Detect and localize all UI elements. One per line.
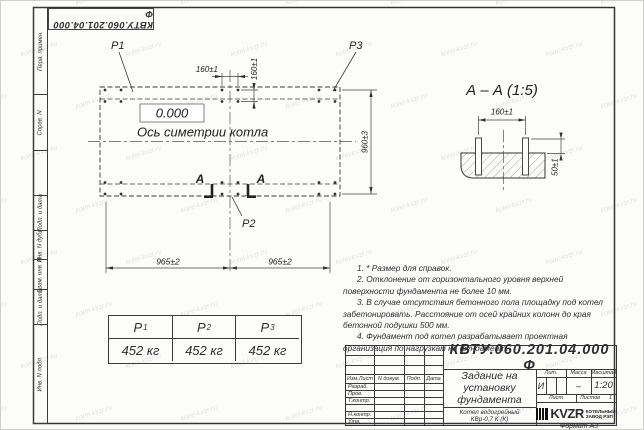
anchor-bolt-left xyxy=(476,138,482,175)
loads-value-p3: 452 кг xyxy=(236,339,299,361)
drawing-sheet: kotel-kvzr.rukotel-kvzr.rukotel-kvzr.ruk… xyxy=(0,0,644,430)
col-data: Дата xyxy=(424,374,443,383)
row-tkontr: Т.контр. xyxy=(346,397,374,404)
dim-span-lines xyxy=(106,202,330,273)
loads-value-p1: 452 кг xyxy=(109,339,173,361)
company-cell: KVZR КОТЕЛЬНЫЙ ЗАВОД РЭП xyxy=(536,402,616,425)
row-utv: Утв. xyxy=(346,418,374,425)
margin-label: Подп. и дата xyxy=(38,288,44,326)
dim-height: 960±3 xyxy=(361,130,370,153)
section-letter-left: А xyxy=(195,172,205,186)
anchor-bolt-right xyxy=(523,138,529,175)
margin-inv-dubl: Инв. N дубл. xyxy=(33,230,48,260)
dim-height-lines xyxy=(342,90,377,194)
scale-value: 1:20 xyxy=(591,377,616,394)
section-title: А – А (1:5) xyxy=(465,82,538,99)
margin-label: Подп. и дата xyxy=(38,194,44,232)
dim-bolt-y: 160±1 xyxy=(250,58,259,80)
load-point-p1: Р1 xyxy=(111,40,124,52)
dim-span-right: 965±2 xyxy=(268,257,292,267)
section-letter-right: А xyxy=(256,172,266,186)
margin-label: Справ. N xyxy=(38,110,44,135)
margin-sprav-n: Справ. N xyxy=(33,94,48,151)
top-doc-number: КВТУ.060.201.04.000 Ф xyxy=(49,8,153,30)
top-doc-number-box: КВТУ.060.201.04.000 Ф xyxy=(48,8,154,30)
mass-label: Масса xyxy=(566,369,591,377)
margin-inv-podl: Инв. N подл. xyxy=(33,324,48,424)
margin-empty xyxy=(33,150,48,196)
col-izm-list: Изм.Лист xyxy=(346,374,374,383)
elevation-value: 0.000 xyxy=(156,106,189,121)
sheet-label: Лист xyxy=(536,394,576,402)
scale-label: Масштаб xyxy=(591,369,616,377)
sheets-label: Листов xyxy=(580,395,600,401)
company-logo-icon xyxy=(536,408,548,420)
title-block: КВТУ.060.201.04.000 Ф Задание на установ… xyxy=(345,345,617,426)
lit-label: Лит. xyxy=(536,369,566,377)
margin-label: Инв. N подл. xyxy=(38,356,44,391)
dim-span-left: 965±2 xyxy=(156,257,180,267)
axis-label: Ось симетрии котла xyxy=(137,125,268,140)
section-dim-protrusion-lines xyxy=(531,139,565,154)
section-dim-protrusion: 50±1 xyxy=(551,158,560,176)
row-empty xyxy=(346,404,374,411)
lit-value: И xyxy=(536,377,546,394)
section-dim-spacing-lines xyxy=(479,116,526,135)
margin-podp-data-2: Подп. и дата xyxy=(33,289,48,325)
grid-line xyxy=(346,365,443,366)
load-point-p2: Р2 xyxy=(242,218,255,230)
row-razrab: Разраб. xyxy=(346,383,374,390)
load-point-p3: Р3 xyxy=(349,40,363,52)
loads-header-p3: Р3 xyxy=(236,316,299,339)
company-logo-text: KVZR xyxy=(550,406,583,421)
loads-header-p2: Р2 xyxy=(173,316,236,339)
margin-label: Взам. инв. N xyxy=(38,257,44,292)
row-prov: Пров. xyxy=(346,390,374,397)
doc-number: КВТУ.060.201.04.000 Ф xyxy=(443,346,616,369)
sheets-cell: Листов 1 xyxy=(576,394,616,402)
drawing-title: Задание на установку фундамента xyxy=(443,369,536,407)
anchor-bolt-dots xyxy=(104,89,337,196)
grid-line xyxy=(374,346,375,425)
section-dim-spacing: 160±1 xyxy=(491,108,513,117)
row-nkontr: Н.контр. xyxy=(346,411,374,418)
dim-bolt-x: 160±1 xyxy=(196,65,218,74)
grid-line xyxy=(546,377,547,394)
margin-label: Перв. примен. xyxy=(38,31,44,71)
margin-perv-primen: Перв. примен. xyxy=(33,7,48,95)
loads-header-p1: Р1 xyxy=(109,316,173,339)
loads-value-p2: 452 кг xyxy=(173,339,236,361)
mass-value: – xyxy=(566,377,591,394)
note-3: 3. В случае отсутствия бетонного пола пл… xyxy=(343,297,615,331)
product-name: Котел водогрейный КВр-0,7 К (К) xyxy=(443,407,536,425)
note-2: 2. Отклонение от горизонтального уровня … xyxy=(343,274,615,297)
company-subtitle: КОТЕЛЬНЫЙ ЗАВОД РЭП xyxy=(586,409,616,419)
concrete-pad xyxy=(461,153,545,178)
company-line2: ЗАВОД РЭП xyxy=(586,414,613,419)
margin-vzam-inv: Взам. инв. N xyxy=(33,259,48,290)
grid-line xyxy=(424,346,425,425)
grid-line xyxy=(556,377,557,394)
grid-line xyxy=(346,355,443,356)
note-1: 1. * Размер для справок. xyxy=(343,263,615,274)
margin-podp-data-1: Подп. и дата xyxy=(33,195,48,231)
grid-line xyxy=(404,346,405,425)
loads-table: Р1 Р2 Р3 452 кг 452 кг 452 кг xyxy=(108,315,302,364)
col-podp: Подп. xyxy=(404,374,424,383)
format-note: Формат А3 xyxy=(548,423,610,430)
sheets-value: 1 xyxy=(609,395,612,401)
center-lines xyxy=(88,70,504,272)
col-n-dokum: N докум. xyxy=(374,374,404,383)
